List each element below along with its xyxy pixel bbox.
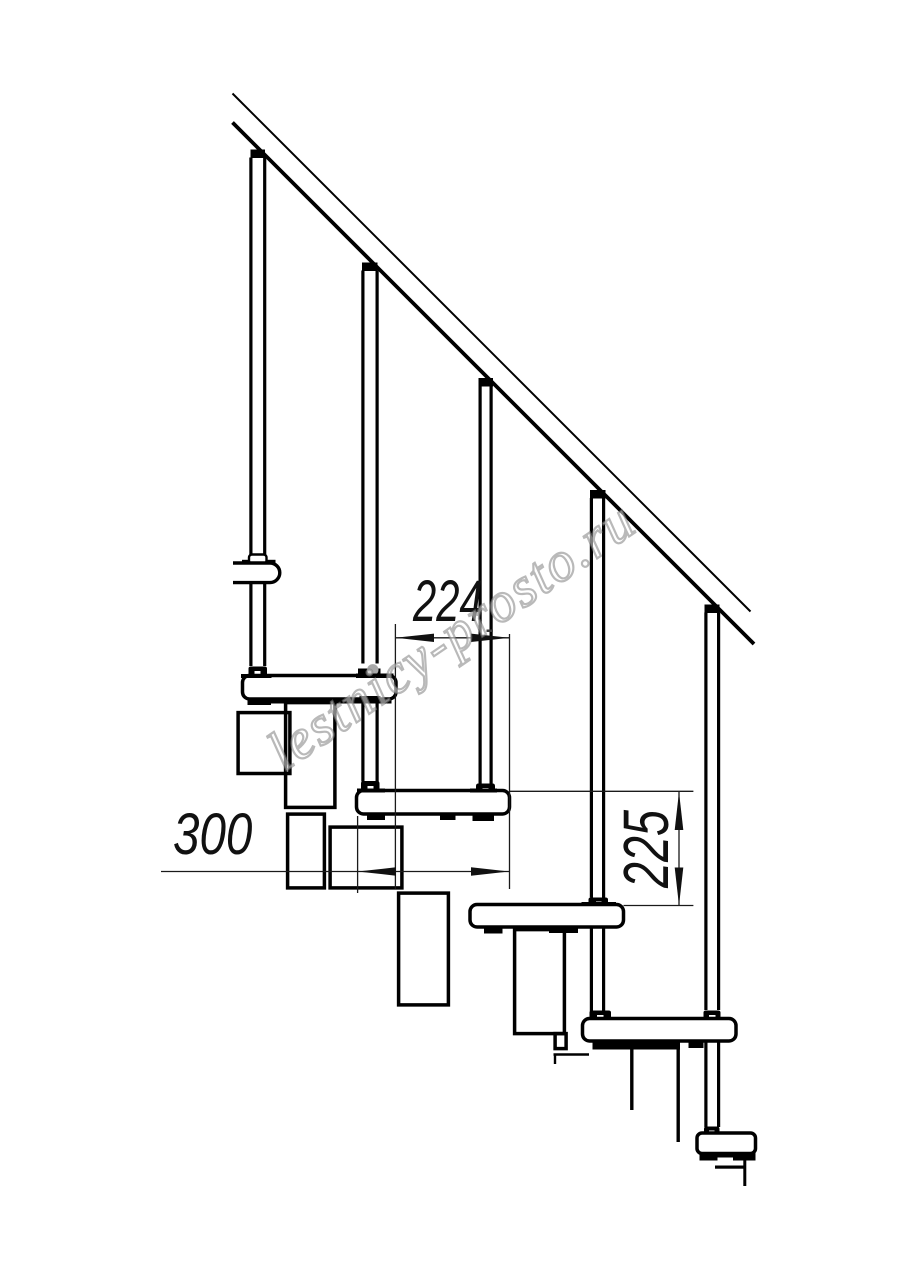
svg-text:225: 225 (610, 809, 682, 888)
svg-text:300: 300 (173, 803, 253, 868)
